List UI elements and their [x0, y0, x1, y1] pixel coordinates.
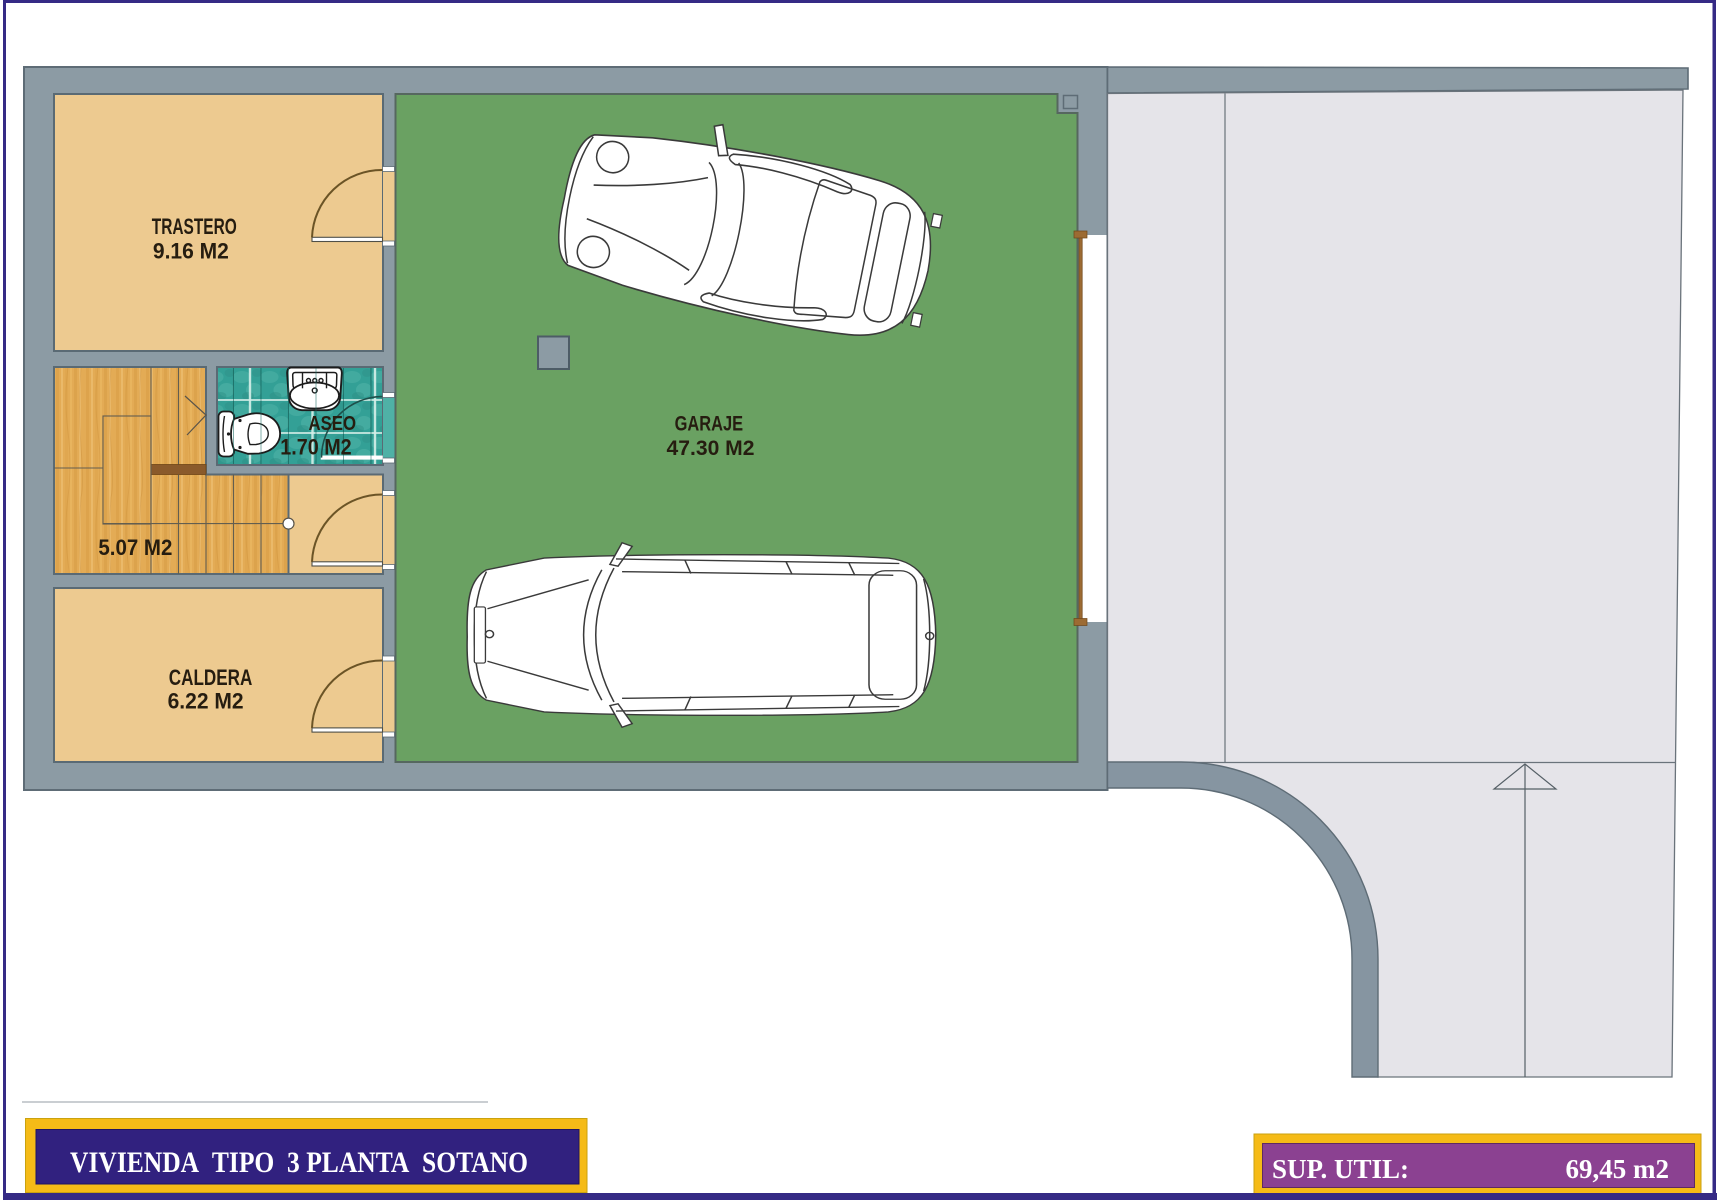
- svg-text:6.22 M2: 6.22 M2: [168, 689, 244, 714]
- svg-text:9.16 M2: 9.16 M2: [153, 239, 229, 264]
- svg-text:SUP. UTIL:: SUP. UTIL:: [1272, 1154, 1409, 1184]
- svg-text:TRASTERO: TRASTERO: [152, 214, 237, 239]
- svg-text:5.07 M2: 5.07 M2: [98, 535, 172, 560]
- svg-text:ASEO: ASEO: [309, 413, 357, 435]
- svg-text:47.30 M2: 47.30 M2: [667, 437, 755, 460]
- svg-text:CALDERA: CALDERA: [169, 665, 253, 690]
- svg-text:69,45 m2: 69,45 m2: [1566, 1154, 1670, 1184]
- svg-text:GARAJE: GARAJE: [675, 413, 744, 436]
- svg-text:1.70 M2: 1.70 M2: [280, 435, 352, 460]
- svg-text:VIVIENDA TIPO 3 PLANTA SOTA: VIVIENDA TIPO 3 PLANTA SOTANO: [70, 1146, 528, 1179]
